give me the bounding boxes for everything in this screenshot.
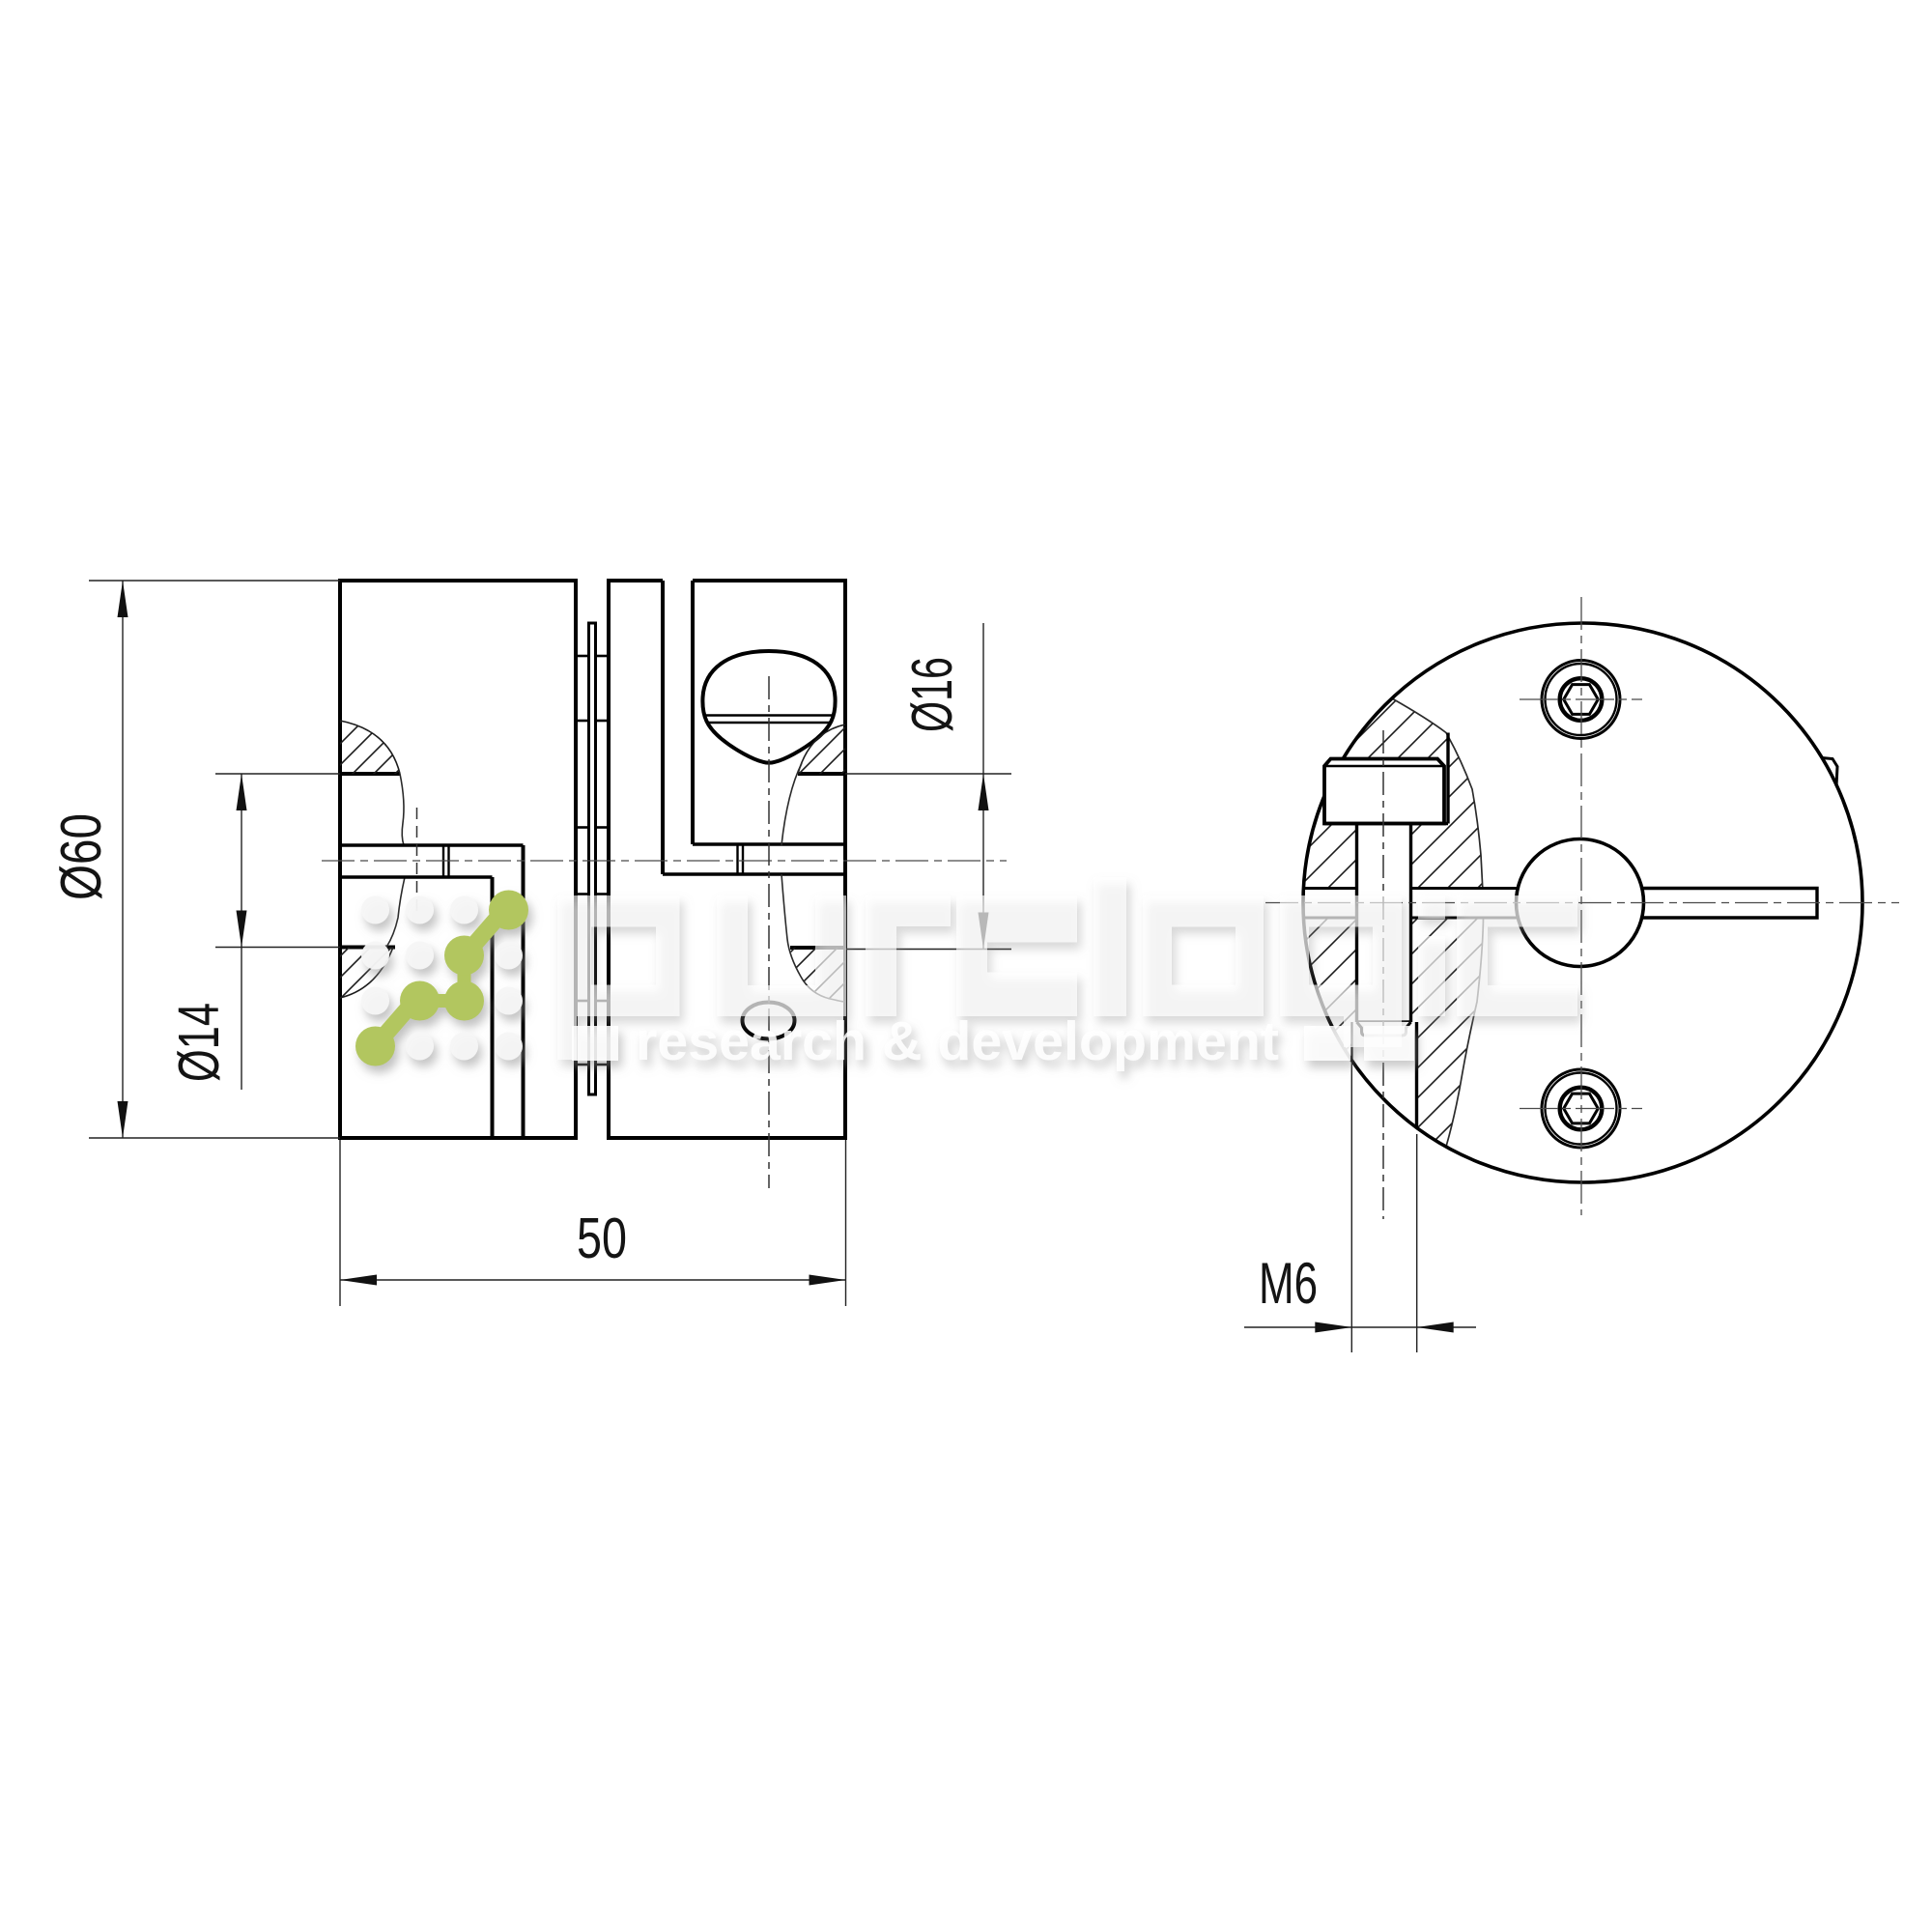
svg-text:M6: M6: [1259, 1251, 1318, 1316]
svg-text:research & development: research & development: [636, 1010, 1279, 1072]
svg-text:Ø14: Ø14: [167, 1003, 231, 1082]
svg-text:Ø16: Ø16: [900, 657, 964, 732]
svg-text:50: 50: [577, 1207, 627, 1270]
svg-text:Ø60: Ø60: [49, 813, 113, 900]
